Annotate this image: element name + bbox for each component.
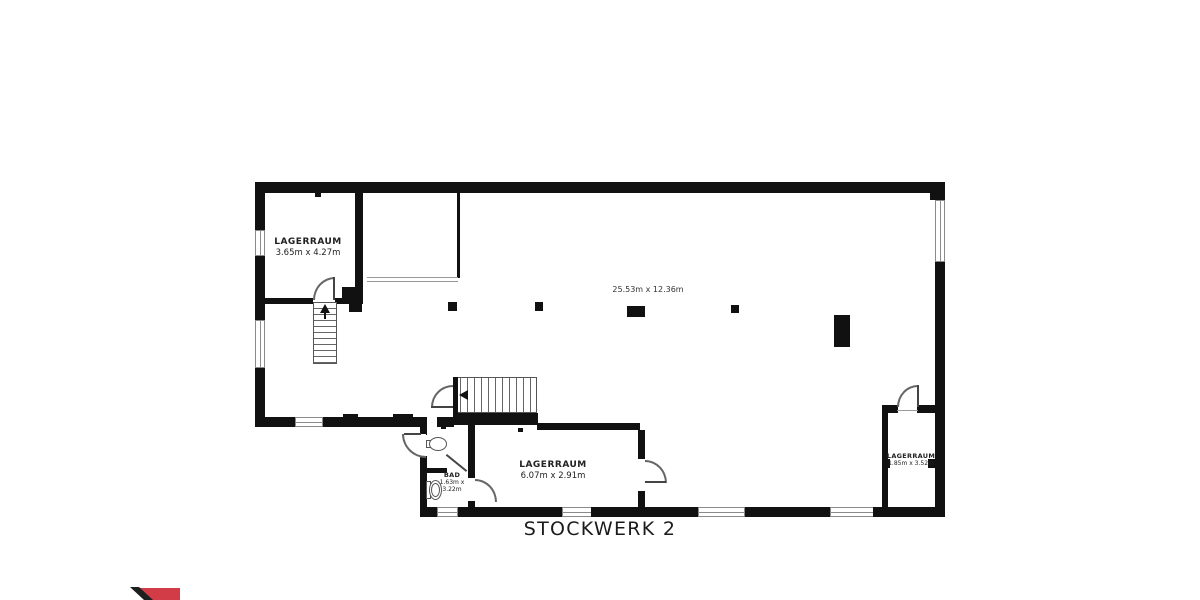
door-arc [475,479,497,502]
wall-segment [917,405,935,413]
room-name: LAGERRAUM [503,460,603,470]
wall-segment [343,414,358,427]
wall-segment [645,507,699,517]
room-label-storage-bottom: LAGERRAUM 6.07m x 2.91m [503,460,603,481]
door-leaf [446,454,467,472]
wall-segment [638,430,645,459]
window [255,320,265,368]
wall-segment [255,256,265,320]
window [935,200,945,262]
room-dimensions: 3.22m [436,486,468,493]
wall-segment [935,262,945,517]
column [731,305,739,313]
column [448,302,457,311]
wall-tick [518,428,523,432]
wall-segment [457,188,460,278]
door-arc [402,434,426,458]
wall-segment [393,414,413,427]
door-leaf [431,406,453,408]
sink [429,437,447,451]
wall-segment [537,423,640,430]
brand-logo [126,586,186,600]
wall-segment [745,507,831,517]
wall-segment [468,501,475,517]
door-leaf [333,277,335,300]
wall-segment [468,423,475,478]
wall-tick [315,193,321,197]
room-label-bathroom: BAD 1.63m x 3.22m [436,471,468,493]
partition-line [367,277,458,278]
door-arc [431,385,453,407]
door-arc [897,385,918,407]
room-dimensions: 1.63m x [436,479,468,486]
floor-plan-canvas: LAGERRAUM 3.65m x 4.27m 25.53m x 12.36m … [0,0,1200,600]
wall-segment [420,507,437,517]
wall-segment [882,405,898,413]
room-label-storage-right: LAGERRAUM 1.85m x 3.52m [874,452,948,467]
column [834,315,850,347]
stair-direction-arrow [459,390,468,400]
room-name: LAGERRAUM [874,452,948,460]
room-dimensions: 25.53m x 12.36m [612,285,683,294]
room-label-storage-top-left: LAGERRAUM 3.65m x 4.27m [258,237,358,258]
door-leaf [645,481,666,483]
stair-arrow-stem [324,311,326,319]
room-dimensions: 3.65m x 4.27m [258,248,358,258]
window [698,507,745,517]
wall-segment [255,417,295,427]
wall-segment [420,417,427,435]
wall-segment [453,413,538,425]
wall-segment [453,377,458,413]
room-name: BAD [436,471,468,479]
window [830,507,874,517]
room-dimensions: 6.07m x 2.91m [503,471,603,481]
door-sill [897,410,918,411]
window [562,507,592,517]
partition-line [367,281,458,282]
wall-segment [930,182,945,200]
column [627,306,645,317]
wall-tick [441,424,446,429]
door-leaf [404,433,421,435]
door-arc [645,460,667,483]
wall-segment [342,287,363,304]
room-label-main-area: 25.53m x 12.36m [548,285,748,294]
wall-segment [873,507,945,517]
door-arc [313,277,335,300]
window [295,417,323,427]
room-dimensions: 1.85m x 3.52m [874,460,948,467]
wall-segment [349,303,362,312]
room-name: LAGERRAUM [258,237,358,247]
floor-title: STOCKWERK 2 [400,518,800,540]
column [535,302,543,311]
wall-segment [255,182,265,230]
window [437,507,458,517]
door-leaf [917,385,919,407]
wall-segment [638,491,645,517]
wall-segment [265,298,313,304]
